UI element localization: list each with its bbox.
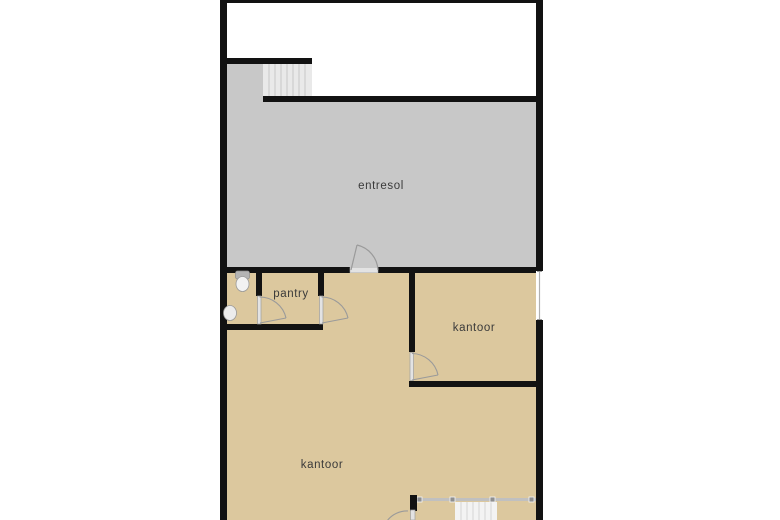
wall-entresol-bottom-right — [378, 267, 543, 273]
door-kantoor-leaf — [410, 353, 414, 381]
wall-stairwell-post — [410, 495, 417, 511]
wall-top — [220, 0, 543, 3]
door-stairwell-leaf — [411, 510, 416, 520]
label-entresol: entresol — [358, 180, 404, 192]
door-pantry-leaf — [320, 296, 324, 324]
wall-kantoor-divider-vertical — [409, 273, 415, 352]
toilet-bowl — [236, 277, 249, 292]
wall-kantoor-divider-horizontal — [409, 381, 536, 387]
entresol-floor-landing — [227, 64, 263, 104]
door-entresol-threshold — [350, 268, 378, 273]
wall-right-lower — [536, 320, 543, 520]
window-right-wall — [536, 271, 543, 320]
toilet-fixture — [236, 271, 250, 292]
wall-toilet-pantry-divider — [256, 273, 262, 296]
upper-staircase — [263, 64, 312, 96]
wall-above-upper-stairs — [227, 58, 312, 64]
door-toilet-leaf — [258, 296, 262, 324]
floorplan-canvas: entresol pantry kantoor kantoor — [0, 0, 780, 520]
railing-bar — [417, 498, 536, 501]
office-floor — [227, 273, 536, 520]
label-pantry: pantry — [273, 288, 309, 300]
label-kantoor-right: kantoor — [453, 322, 496, 334]
sink-fixture — [224, 306, 237, 321]
label-kantoor-main: kantoor — [301, 459, 344, 471]
wall-below-upper-stairs — [263, 96, 543, 102]
wall-pantry-hall-divider — [318, 273, 324, 296]
wall-left — [220, 0, 227, 520]
floorplan-svg: entresol pantry kantoor kantoor — [0, 0, 780, 520]
wall-right-upper — [536, 0, 543, 271]
wall-pantry-bottom — [220, 324, 323, 330]
lower-staircase — [455, 502, 497, 520]
